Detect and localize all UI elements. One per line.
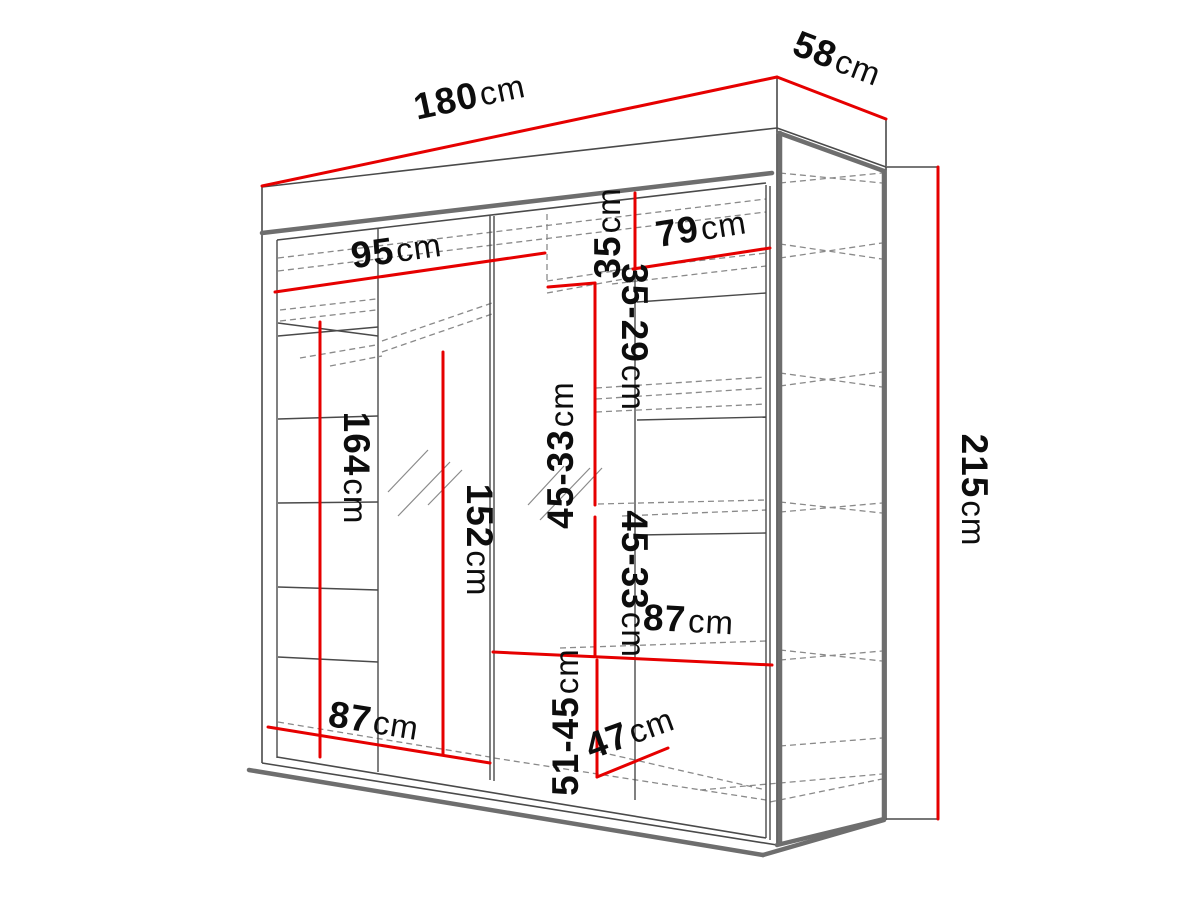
dim-bottom-depth-label: 47cm [580,697,680,767]
wardrobe-dimension-diagram: 180cm 58cm 215cm 95cm 79cm 35cm 35-29cm … [0,0,1200,899]
dim-middle-shelf-range-1-label: 45-33cm [540,381,581,529]
dim-top-right-width-label: 79cm [653,200,749,255]
dim-total-width-label: 180cm [410,64,529,128]
dim-depth-label: 58cm [788,23,888,94]
dim-bottom-shelf-range-label: 51-45cm [545,648,586,796]
dim-upper-shelf-range-label: 35-29cm [614,263,655,411]
dim-total-height-label: 215cm [954,434,995,547]
dim-left-section-height-label: 164cm [336,412,377,525]
dim-upper-shelf-tick [548,283,595,287]
dim-middle-section-height-label: 152cm [459,484,500,597]
dim-right-shelf-width-label: 87cm [642,597,735,643]
